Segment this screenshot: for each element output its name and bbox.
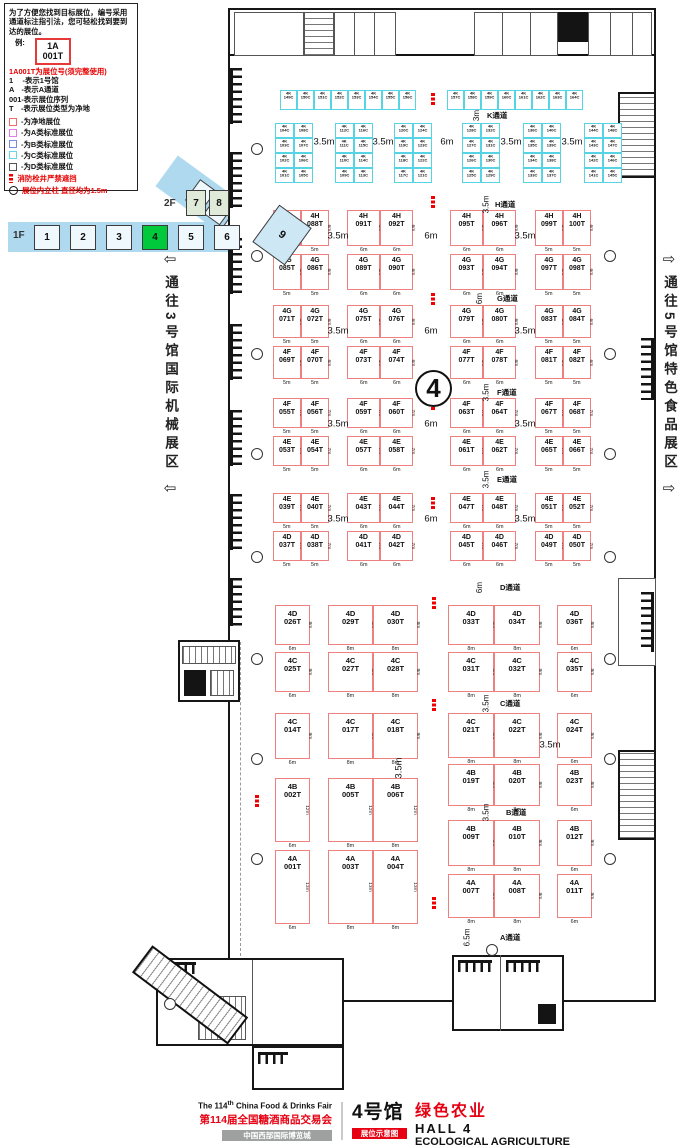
minimap-hall-7[interactable]: 7	[186, 190, 206, 216]
booth-4K-153C[interactable]: 4K153C	[348, 90, 365, 110]
booth-id: 4K114C	[359, 154, 368, 163]
booth-4K-160C[interactable]: 4K160C	[498, 90, 515, 110]
booth-4E-051T[interactable]: 4E051T5m7m	[535, 493, 563, 523]
booth-4K-118C[interactable]: 4K118C	[394, 153, 413, 168]
booth-4K-123C[interactable]: 4K123C	[413, 138, 432, 153]
booth-4G-094T[interactable]: 4G094T6m6m	[483, 254, 516, 290]
booth-4F-059T[interactable]: 4F059T6m7m	[347, 398, 380, 428]
dim-label: 6m	[450, 466, 484, 472]
booth-4K-139C[interactable]: 4K139C	[542, 138, 561, 153]
booth-4C-018T[interactable]: 4C018T8m9m	[373, 713, 418, 759]
booth-4K-157C[interactable]: 4K157C	[447, 90, 464, 110]
booth-id: 4G097T	[541, 255, 557, 272]
booth-4A-004T[interactable]: 4A004T8m13m	[373, 850, 418, 924]
booth-4G-075T[interactable]: 4G075T6m6m	[347, 305, 380, 338]
booth-4C-022T[interactable]: 4C022T8m8m	[494, 713, 540, 758]
minimap-hall-6[interactable]: 6	[214, 225, 240, 250]
hall-theme-cn: 绿色农业	[415, 1097, 570, 1121]
booth-id: 4C031T	[462, 653, 479, 673]
booth-id: 4K118C	[399, 154, 408, 163]
booth-4K-112C[interactable]: 4K112C	[335, 123, 354, 138]
booth-4E-040T[interactable]: 4E040T5m7m	[301, 493, 329, 523]
dim-label: 5m	[273, 466, 301, 472]
dim-label: 9m	[416, 733, 422, 740]
dim-label: 6m	[450, 338, 484, 344]
aisle-width-label: 3.5m	[481, 196, 490, 214]
booth-id: 4K115C	[359, 139, 368, 148]
structure	[230, 324, 242, 380]
booth-4F-063T[interactable]: 4F063T6m7m	[450, 398, 483, 428]
booth-4K-117C[interactable]: 4K117C	[394, 168, 413, 183]
aisle-label-D: D通道	[500, 582, 520, 593]
booth-4K-148C[interactable]: 4K148C	[603, 123, 622, 138]
legend-swatch-row: -为A类标准展位	[9, 128, 133, 137]
dashed-boundary	[240, 642, 241, 956]
booth-id: 4F073T	[356, 347, 372, 364]
booth-4F-077T[interactable]: 4F077T6m6m	[450, 346, 483, 379]
booth-4H-092T[interactable]: 4H092T6m6m	[380, 210, 413, 246]
booth-4A-011T[interactable]: 4A011T6m9m	[557, 874, 592, 918]
booth-4D-033T[interactable]: 4D033T8m8m	[448, 605, 494, 645]
booth-4K-136C[interactable]: 4K136C	[523, 123, 542, 138]
booth-id: 4E048T	[492, 494, 508, 511]
booth-4K-143C[interactable]: 4K143C	[584, 138, 603, 153]
booth-id: 4K127C	[467, 139, 477, 148]
dim-label: 7m	[411, 505, 417, 512]
booth-4K-131C[interactable]: 4K131C	[481, 138, 500, 153]
dim-label: 3.5m	[514, 231, 535, 242]
booth-4K-156C[interactable]: 4K156C	[399, 90, 416, 110]
booth-4K-159C[interactable]: 4K159C	[481, 90, 498, 110]
booth-4K-129C[interactable]: 4K129C	[481, 168, 500, 183]
booth-4K-133C[interactable]: 4K133C	[523, 168, 542, 183]
booth-4C-025T[interactable]: 4C025T6m8m	[275, 652, 310, 692]
dim-label: 5m	[535, 561, 563, 567]
dim-label: 6m	[424, 326, 437, 337]
booth-id: 4F078T	[492, 347, 508, 364]
legend-code-line: 1 -表示1号馆	[9, 76, 133, 85]
booth-4A-003T[interactable]: 4A003T8m13m	[328, 850, 373, 924]
dim-label: 6m	[514, 318, 520, 325]
booth-id: 4F063T	[459, 399, 475, 416]
route-to-hall5: ⇨ 通往5号馆特色食品展区 ⇨	[659, 252, 679, 496]
booth-4E-054T[interactable]: 4E054T5m7m	[301, 436, 329, 466]
legend-swatch-row: -为B类标准展位	[9, 140, 133, 149]
swatch-label: -为A类标准展位	[21, 128, 73, 137]
booth-id: 4G072T	[307, 306, 323, 323]
booth-4F-078T[interactable]: 4F078T6m6m	[483, 346, 516, 379]
booth-id: 4E044T	[389, 494, 405, 511]
dim-label: 8m	[538, 669, 544, 676]
booth-4D-038T[interactable]: 4D038T5m7m	[301, 531, 329, 561]
aisle-label-B: B通道	[506, 807, 526, 818]
booth-id: 4K111C	[340, 139, 349, 148]
minimap-hall-8[interactable]: 8	[209, 190, 229, 216]
dim-label: 5m	[563, 428, 591, 434]
booth-id: 4F060T	[389, 399, 405, 416]
booth-4K-109C[interactable]: 4K109C	[335, 168, 354, 183]
booth-id: 4K149C	[284, 91, 294, 100]
booth-4G-079T[interactable]: 4G079T6m6m	[450, 305, 483, 338]
booth-4F-070T[interactable]: 4F070T5m6m	[301, 346, 329, 379]
booth-4K-158C[interactable]: 4K158C	[464, 90, 481, 110]
booth-id: 4K143C	[589, 139, 599, 148]
booth-4D-042T[interactable]: 4D042T6m7m	[380, 531, 413, 561]
booth-id: 4G075T	[356, 306, 372, 323]
booth-4F-060T[interactable]: 4F060T6m7m	[380, 398, 413, 428]
dim-label: 5m	[563, 246, 591, 252]
booth-id: 4F074T	[389, 347, 405, 364]
dim-label: 5m	[301, 290, 329, 296]
booth-4D-036T[interactable]: 4D036T6m8m	[557, 605, 592, 645]
column-marker	[604, 753, 616, 765]
booth-4K-101C[interactable]: 4K101C	[275, 168, 294, 183]
booth-4K-137C[interactable]: 4K137C	[542, 168, 561, 183]
booth-id: 4K126C	[467, 154, 477, 163]
booth-4K-113C[interactable]: 4K113C	[354, 168, 373, 183]
booth-id: 4H091T	[356, 211, 372, 228]
booth-id: 4D042T	[389, 532, 405, 549]
legend-code-line: 001-表示展位序列	[9, 95, 133, 104]
booth-4K-162C[interactable]: 4K162C	[532, 90, 549, 110]
booth-4K-120C[interactable]: 4K120C	[394, 123, 413, 138]
booth-4K-110C[interactable]: 4K110C	[335, 153, 354, 168]
booth-id: 4G098T	[569, 255, 585, 272]
booth-4K-103C[interactable]: 4K103C	[275, 138, 294, 153]
booth-4K-119C[interactable]: 4K119C	[394, 138, 413, 153]
booth-id: 4K150C	[301, 91, 311, 100]
aisle-width-label: 3.5m	[481, 804, 490, 822]
fire-hydrant-marker	[431, 93, 435, 105]
dim-label: 6m	[450, 246, 484, 252]
minimap-1f-halls: 123456	[34, 225, 240, 250]
booth-4B-006T[interactable]: 4B006T8m12m	[373, 778, 418, 842]
booth-4E-043T[interactable]: 4E043T6m7m	[347, 493, 380, 523]
booth-4K-105C[interactable]: 4K105C	[294, 168, 313, 183]
booth-4D-041T[interactable]: 4D041T6m7m	[347, 531, 380, 561]
booth-4G-090T[interactable]: 4G090T6m6m	[380, 254, 413, 290]
booth-4K-138C[interactable]: 4K138C	[542, 153, 561, 168]
booth-4D-050T[interactable]: 4D050T5m7m	[563, 531, 591, 561]
booth-4E-058T[interactable]: 4E058T6m7m	[380, 436, 413, 466]
dim-label: 6m	[483, 428, 517, 434]
dim-label: 6m	[557, 692, 593, 698]
minimap-hall-1[interactable]: 1	[34, 225, 60, 250]
dim-label: 8m	[327, 759, 374, 765]
booth-4K-102C[interactable]: 4K102C	[275, 153, 294, 168]
dim-label: 8m	[416, 622, 422, 629]
route-right-text: 通往5号馆特色食品展区	[659, 275, 679, 473]
booth-4B-002T[interactable]: 4B002T6m12m	[275, 778, 310, 842]
dim-label: 3.5m	[514, 419, 535, 430]
dim-label: 6m	[347, 338, 381, 344]
minimap-hall-3[interactable]: 3	[106, 225, 132, 250]
booth-4K-150C[interactable]: 4K150C	[297, 90, 314, 110]
dim-label: 13m	[413, 882, 419, 892]
booth-4K-135C[interactable]: 4K135C	[523, 138, 542, 153]
booth-id: 4E047T	[459, 494, 475, 511]
dim-label: 6m	[275, 924, 311, 930]
booth-4G-097T[interactable]: 4G097T5m6m	[535, 254, 563, 290]
booth-4E-044T[interactable]: 4E044T6m7m	[380, 493, 413, 523]
dim-label: 6m	[347, 428, 381, 434]
dim-label: 5m	[535, 290, 563, 296]
booth-4F-056T[interactable]: 4F056T5m7m	[301, 398, 329, 428]
booth-4G-072T[interactable]: 4G072T5m6m	[301, 305, 329, 338]
booth-id: 4K138C	[547, 154, 557, 163]
minimap-hall-5[interactable]: 5	[178, 225, 204, 250]
booth-4G-086T[interactable]: 4G086T5m6m	[301, 254, 329, 290]
booth-id: 4E039T	[279, 494, 295, 511]
dim-label: 8m	[493, 918, 541, 924]
dim-label: 5m	[273, 523, 301, 529]
booth-4C-028T[interactable]: 4C028T8m8m	[373, 652, 418, 692]
swatch-label: -为B类标准展位	[21, 140, 73, 149]
arrow-right-icon: ⇨	[663, 252, 676, 267]
booth-4E-066T[interactable]: 4E066T5m7m	[563, 436, 591, 466]
booth-4K-127C[interactable]: 4K127C	[462, 138, 481, 153]
booth-4H-091T[interactable]: 4H091T6m6m	[347, 210, 380, 246]
hall4-floorplan: 为了方便您找到目标展位，编号采用通道标注指引法，您可轻松找到要到达的展位。 例:…	[0, 0, 697, 1147]
booth-4C-031T[interactable]: 4C031T8m8m	[448, 652, 494, 692]
booth-4K-141C[interactable]: 4K141C	[584, 168, 603, 183]
booth-4B-020T[interactable]: 4B020T8m8m	[494, 764, 540, 806]
stair-block	[618, 92, 656, 178]
booth-4K-114C[interactable]: 4K114C	[354, 153, 373, 168]
booth-4E-052T[interactable]: 4E052T5m7m	[563, 493, 591, 523]
booth-4K-125C[interactable]: 4K125C	[462, 168, 481, 183]
structure	[500, 955, 501, 1031]
booth-4E-057T[interactable]: 4E057T6m7m	[347, 436, 380, 466]
booth-4D-037T[interactable]: 4D037T5m7m	[273, 531, 301, 561]
booth-4K-147C[interactable]: 4K147C	[603, 138, 622, 153]
fire-hydrant-marker	[432, 897, 436, 909]
booth-4K-155C[interactable]: 4K155C	[382, 90, 399, 110]
booth-4A-007T[interactable]: 4A007T8m9m	[448, 874, 494, 918]
booth-4K-121C[interactable]: 4K121C	[413, 168, 432, 183]
booth-id: 4K119C	[399, 139, 408, 148]
arrow-right-icon: ⇨	[663, 481, 676, 496]
dim-label: 5m	[563, 466, 591, 472]
booth-id: 4K104C	[280, 124, 290, 133]
booth-4E-065T[interactable]: 4E065T5m7m	[535, 436, 563, 466]
column-marker	[604, 551, 616, 563]
booth-4K-142C[interactable]: 4K142C	[584, 153, 603, 168]
booth-4K-134C[interactable]: 4K134C	[523, 153, 542, 168]
booth-4K-151C[interactable]: 4K151C	[314, 90, 331, 110]
booth-4B-023T[interactable]: 4B023T6m8m	[557, 764, 592, 806]
booth-4B-019T[interactable]: 4B019T8m8m	[448, 764, 494, 806]
swatch-box-icon	[9, 140, 17, 148]
booth-4A-001T[interactable]: 4A001T6m13m	[275, 850, 310, 924]
booth-4E-061T[interactable]: 4E061T6m7m	[450, 436, 483, 466]
booth-4K-161C[interactable]: 4K161C	[515, 90, 532, 110]
booth-4E-047T[interactable]: 4E047T6m7m	[450, 493, 483, 523]
booth-id: 4E053T	[279, 437, 295, 454]
legend-example-label: 例:	[15, 38, 25, 47]
booth-4D-030T[interactable]: 4D030T8m8m	[373, 605, 418, 645]
booth-4C-032T[interactable]: 4C032T8m8m	[494, 652, 540, 692]
dim-label: 8m	[447, 645, 495, 651]
structure	[230, 68, 242, 124]
booth-4D-045T[interactable]: 4D045T6m7m	[450, 531, 483, 561]
structure	[610, 12, 611, 56]
dim-label: 6m	[380, 338, 414, 344]
booth-4E-048T[interactable]: 4E048T6m7m	[483, 493, 516, 523]
dim-label: 9m	[308, 733, 314, 740]
booth-4K-154C[interactable]: 4K154C	[365, 90, 382, 110]
booth-4K-140C[interactable]: 4K140C	[542, 123, 561, 138]
footer-divider	[341, 1102, 343, 1140]
booth-4B-005T[interactable]: 4B005T8m12m	[328, 778, 373, 842]
legend-column-note: 展位内立柱 直径均为1.5m	[9, 186, 133, 195]
dim-label: 7m	[514, 505, 520, 512]
booth-id: 4C028T	[387, 653, 404, 673]
booth-4C-024T[interactable]: 4C024T6m8m	[557, 713, 592, 758]
booth-4K-164C[interactable]: 4K164C	[566, 90, 583, 110]
booth-4K-111C[interactable]: 4K111C	[335, 138, 354, 153]
booth-4D-046T[interactable]: 4D046T6m7m	[483, 531, 516, 561]
booth-4C-017T[interactable]: 4C017T8m9m	[328, 713, 373, 759]
booth-4F-081T[interactable]: 4F081T5m6m	[535, 346, 563, 379]
booth-id: 4B002T	[284, 779, 301, 799]
booth-4K-132C[interactable]: 4K132C	[481, 123, 500, 138]
booth-4D-026T[interactable]: 4D026T6m8m	[275, 605, 310, 645]
booth-4G-080T[interactable]: 4G080T6m6m	[483, 305, 516, 338]
booth-4B-012T[interactable]: 4B012T6m9m	[557, 820, 592, 866]
booth-4K-144C[interactable]: 4K144C	[584, 123, 603, 138]
booth-4K-124C[interactable]: 4K124C	[413, 123, 432, 138]
booth-id: 4G086T	[307, 255, 323, 272]
booth-4K-146C[interactable]: 4K146C	[603, 153, 622, 168]
booth-4K-152C[interactable]: 4K152C	[331, 90, 348, 110]
booth-id: 4G083T	[541, 306, 557, 323]
booth-4F-068T[interactable]: 4F068T5m7m	[563, 398, 591, 428]
booth-4A-008T[interactable]: 4A008T8m9m	[494, 874, 540, 918]
booth-4K-106C[interactable]: 4K106C	[294, 153, 313, 168]
dim-label: 6m	[275, 759, 311, 765]
booth-4E-062T[interactable]: 4E062T6m7m	[483, 436, 516, 466]
aisle-label-C: C通道	[500, 698, 520, 709]
dim-label: 6m	[589, 225, 595, 232]
booth-4B-009T[interactable]: 4B009T8m9m	[448, 820, 494, 866]
booth-4K-149C[interactable]: 4K149C	[280, 90, 297, 110]
booth-id: 4E066T	[569, 437, 585, 454]
dim-label: 6m	[380, 561, 414, 567]
booth-4H-095T[interactable]: 4H095T6m6m	[450, 210, 483, 246]
dim-label: 8m	[327, 645, 374, 651]
booth-4C-014T[interactable]: 4C014T6m9m	[275, 713, 310, 759]
dim-label: 5m	[535, 379, 563, 385]
booth-4G-093T[interactable]: 4G093T6m6m	[450, 254, 483, 290]
column-marker	[251, 653, 263, 665]
booth-4K-130C[interactable]: 4K130C	[481, 153, 500, 168]
dim-label: 3.5m	[327, 419, 348, 430]
booth-4K-128C[interactable]: 4K128C	[462, 123, 481, 138]
booth-4E-053T[interactable]: 4E053T5m7m	[273, 436, 301, 466]
booth-id: 4K124C	[418, 124, 428, 133]
dim-label: 3.5m	[327, 231, 348, 242]
dim-label: 8m	[590, 669, 596, 676]
booth-4C-021T[interactable]: 4C021T8m8m	[448, 713, 494, 758]
booth-4F-055T[interactable]: 4F055T5m7m	[273, 398, 301, 428]
booth-id: 4A011T	[566, 875, 583, 895]
booth-4D-029T[interactable]: 4D029T8m8m	[328, 605, 373, 645]
route-to-hall3: ⇦ 通往3号馆国际机械展区 ⇦	[160, 252, 180, 496]
booth-4D-034T[interactable]: 4D034T8m8m	[494, 605, 540, 645]
minimap-hall-4[interactable]: 4	[142, 225, 168, 250]
swatch-label: -为C类标准展位	[21, 151, 73, 160]
booth-id: 4C021T	[462, 714, 479, 734]
booth-4F-073T[interactable]: 4F073T6m6m	[347, 346, 380, 379]
booth-4K-115C[interactable]: 4K115C	[354, 138, 373, 153]
aisle-label-H: H通道	[495, 199, 515, 210]
aisle-width-label: 6m	[475, 293, 484, 304]
dim-label: 6m	[424, 514, 437, 525]
booth-4G-084T[interactable]: 4G084T5m6m	[563, 305, 591, 338]
booth-id: 4A001T	[284, 851, 301, 871]
booth-id: 4K106C	[299, 154, 309, 163]
booth-4K-126C[interactable]: 4K126C	[462, 153, 481, 168]
structure	[506, 960, 540, 972]
booth-id: 4B005T	[342, 779, 359, 799]
legend-code-line: A -表示A通道	[9, 85, 133, 94]
booth-4K-145C[interactable]: 4K145C	[603, 168, 622, 183]
dim-label: 9m	[590, 893, 596, 900]
dim-label: 6m	[411, 269, 417, 276]
minimap-hall-2[interactable]: 2	[70, 225, 96, 250]
booth-4C-027T[interactable]: 4C027T8m8m	[328, 652, 373, 692]
booth-4K-163C[interactable]: 4K163C	[549, 90, 566, 110]
booth-4C-035T[interactable]: 4C035T6m8m	[557, 652, 592, 692]
dim-label: 3.5m	[561, 137, 582, 148]
booth-4H-099T[interactable]: 4H099T5m6m	[535, 210, 563, 246]
dim-label: 6m	[380, 290, 414, 296]
booth-4K-104C[interactable]: 4K104C	[275, 123, 294, 138]
booth-id: 4D037T	[279, 532, 295, 549]
booth-4G-076T[interactable]: 4G076T6m6m	[380, 305, 413, 338]
column-marker	[486, 944, 498, 956]
dim-label: 8m	[327, 924, 374, 930]
booth-4D-049T[interactable]: 4D049T5m7m	[535, 531, 563, 561]
dim-label: 12m	[413, 805, 419, 815]
booth-4E-039T[interactable]: 4E039T5m7m	[273, 493, 301, 523]
booth-id: 4K125C	[467, 169, 477, 178]
booth-4G-098T[interactable]: 4G098T5m6m	[563, 254, 591, 290]
booth-4F-082T[interactable]: 4F082T5m6m	[563, 346, 591, 379]
booth-4F-067T[interactable]: 4F067T5m7m	[535, 398, 563, 428]
booth-4F-069T[interactable]: 4F069T5m6m	[273, 346, 301, 379]
booth-4B-010T[interactable]: 4B010T8m9m	[494, 820, 540, 866]
dim-label: 5m	[301, 561, 329, 567]
booth-4K-116C[interactable]: 4K116C	[354, 123, 373, 138]
booth-4H-100T[interactable]: 4H100T5m6m	[563, 210, 591, 246]
dim-label: 7m	[327, 543, 333, 550]
booth-4H-096T[interactable]: 4H096T6m6m	[483, 210, 516, 246]
booth-4K-108C[interactable]: 4K108C	[294, 123, 313, 138]
booth-4K-107C[interactable]: 4K107C	[294, 138, 313, 153]
booth-4G-089T[interactable]: 4G089T6m6m	[347, 254, 380, 290]
booth-id: 4G076T	[389, 306, 405, 323]
booth-id: 4K163C	[553, 91, 563, 100]
dim-label: 6m	[450, 561, 484, 567]
booth-4G-083T[interactable]: 4G083T5m6m	[535, 305, 563, 338]
booth-4G-071T[interactable]: 4G071T5m6m	[273, 305, 301, 338]
booth-4F-074T[interactable]: 4F074T6m6m	[380, 346, 413, 379]
booth-4F-064T[interactable]: 4F064T6m7m	[483, 398, 516, 428]
booth-4K-122C[interactable]: 4K122C	[413, 153, 432, 168]
booth-id: 4C035T	[566, 653, 583, 673]
